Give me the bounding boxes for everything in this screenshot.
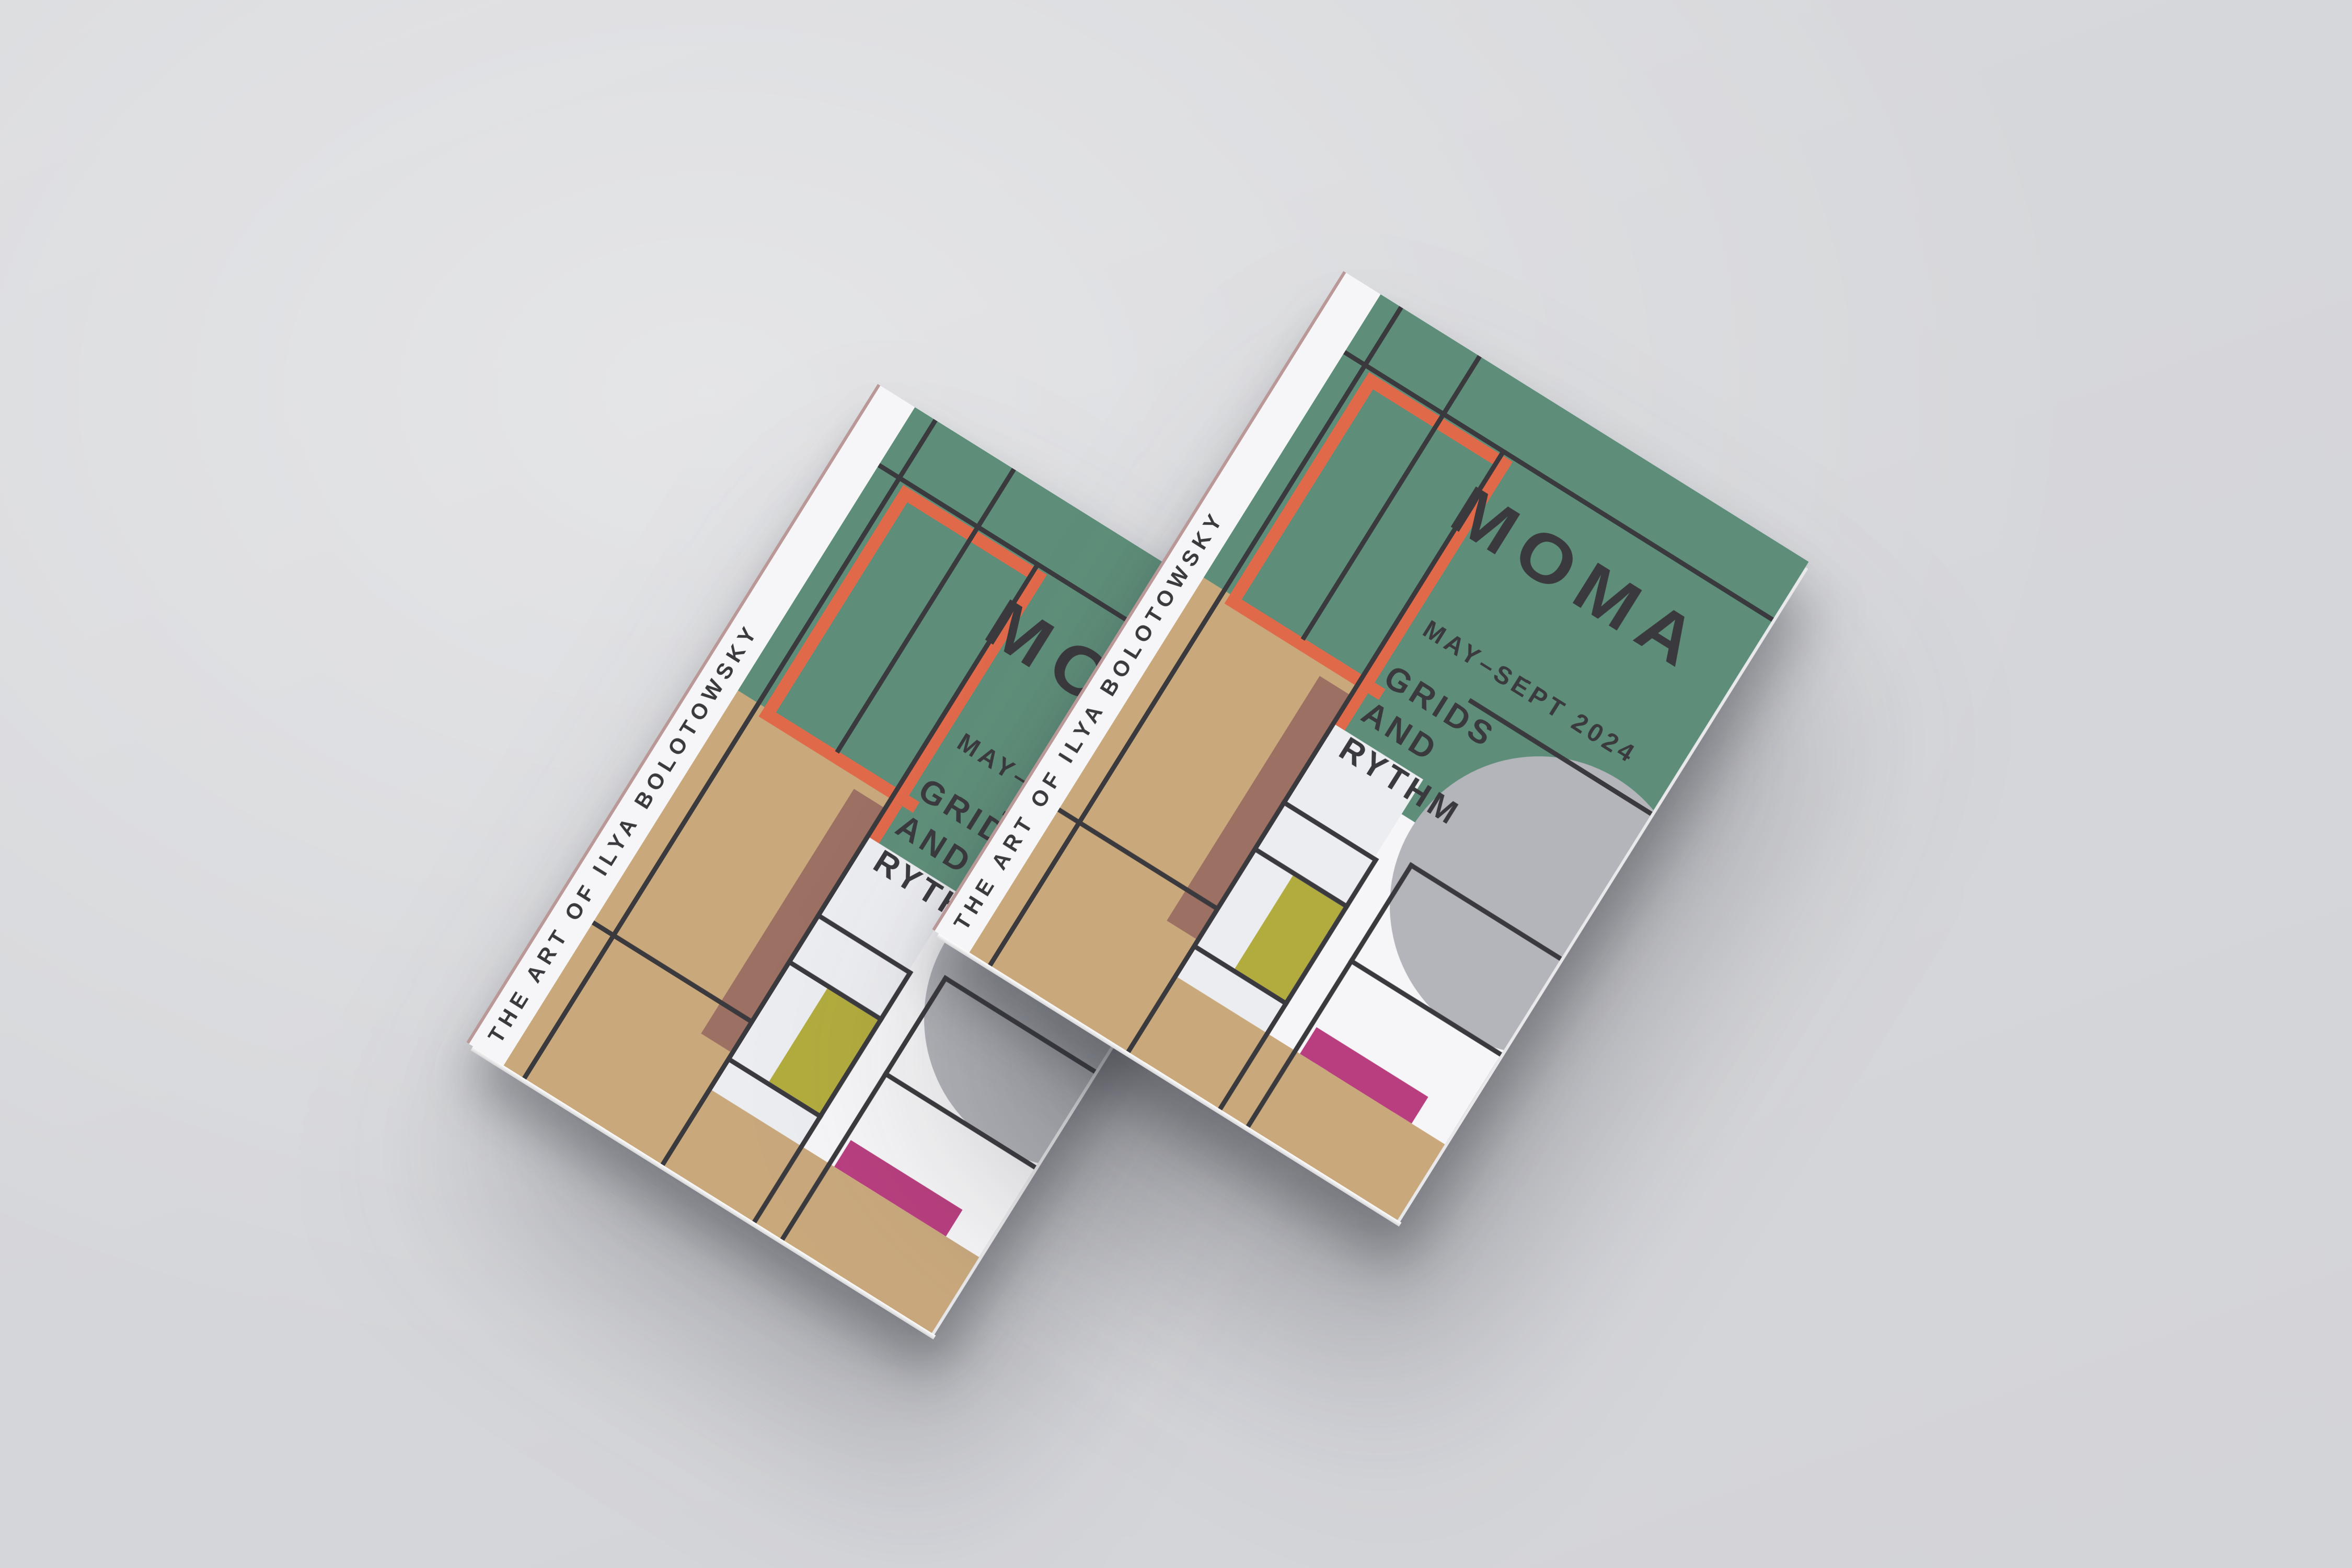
- scene-background: THE ART OF ILYA BOLOTOWSKY MOMA MAY–SEPT…: [0, 0, 2352, 1568]
